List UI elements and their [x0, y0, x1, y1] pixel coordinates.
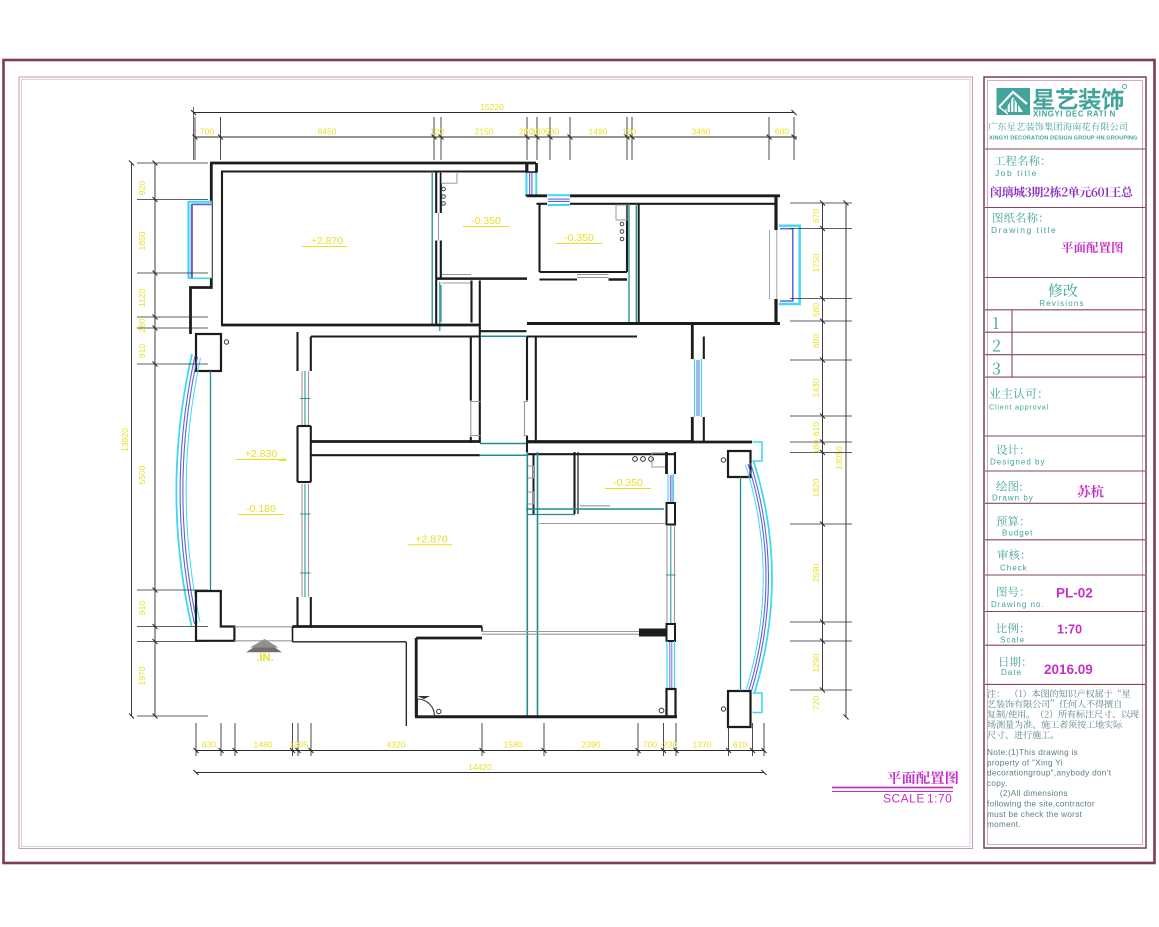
svg-text:Note:(1)This drawing is: Note:(1)This drawing is — [987, 748, 1078, 757]
svg-text:700: 700 — [200, 127, 214, 137]
svg-text:1970: 1970 — [137, 666, 147, 685]
svg-text:600: 600 — [811, 334, 821, 348]
svg-text:15220: 15220 — [480, 102, 504, 112]
svg-text:120: 120 — [430, 127, 444, 137]
svg-text:Job title: Job title — [995, 168, 1038, 178]
svg-text:13050: 13050 — [834, 446, 844, 470]
svg-text:moment.: moment. — [987, 820, 1021, 829]
svg-text:1120: 1120 — [137, 289, 147, 308]
svg-text:13920: 13920 — [120, 428, 130, 452]
svg-text:Check: Check — [1000, 564, 1028, 573]
svg-text:Drawing title: Drawing title — [991, 225, 1057, 235]
svg-text:1480: 1480 — [254, 740, 273, 750]
svg-text:920: 920 — [137, 181, 147, 195]
svg-text:Revisions: Revisions — [1039, 299, 1084, 308]
svg-text:.IN.: .IN. — [256, 652, 273, 664]
svg-text:property of "Xing Yi: property of "Xing Yi — [987, 758, 1063, 767]
svg-text:300: 300 — [531, 127, 545, 137]
svg-text:Date: Date — [1001, 668, 1022, 677]
svg-text:610: 610 — [811, 422, 821, 436]
svg-text:1430: 1430 — [811, 378, 821, 397]
svg-text:(2)All dimensions: (2)All dimensions — [987, 789, 1068, 798]
svg-text:Client approval: Client approval — [989, 403, 1049, 412]
svg-text:1490: 1490 — [589, 127, 608, 137]
svg-text:+2.870: +2.870 — [311, 235, 344, 247]
svg-text:1290: 1290 — [811, 653, 821, 672]
svg-text:5500: 5500 — [137, 465, 147, 484]
svg-text:must be check the worst: must be check the worst — [987, 810, 1083, 819]
svg-text:+2.870: +2.870 — [415, 534, 448, 546]
svg-text:670: 670 — [811, 209, 821, 223]
svg-text:Budget: Budget — [1002, 529, 1033, 538]
svg-text:600: 600 — [775, 127, 789, 137]
svg-text:3460: 3460 — [692, 127, 711, 137]
svg-text:Drawn by: Drawn by — [992, 494, 1034, 503]
svg-text:230: 230 — [663, 740, 677, 750]
svg-text:-0.180: -0.180 — [246, 503, 276, 515]
svg-text:910: 910 — [137, 601, 147, 615]
svg-text:SCALE: SCALE — [883, 792, 925, 806]
svg-text:-0.350: -0.350 — [471, 215, 501, 227]
svg-text:120: 120 — [622, 127, 636, 137]
svg-text:Drawing no.: Drawing no. — [991, 600, 1045, 609]
svg-text:1850: 1850 — [137, 231, 147, 250]
svg-text:280: 280 — [137, 318, 147, 332]
svg-text:Scale: Scale — [1000, 636, 1025, 645]
svg-text:2016.09: 2016.09 — [1044, 662, 1093, 677]
svg-text:530: 530 — [545, 127, 559, 137]
svg-text:2590: 2590 — [811, 563, 821, 582]
svg-text:PL-02: PL-02 — [1056, 586, 1093, 601]
svg-text:copy.: copy. — [987, 779, 1007, 788]
svg-text:580: 580 — [811, 303, 821, 317]
svg-text:2150: 2150 — [475, 127, 494, 137]
svg-text:+2.830: +2.830 — [245, 448, 278, 460]
svg-text:decorationgroup",anybody don’t: decorationgroup",anybody don’t — [987, 769, 1112, 778]
svg-text:XINGYI DEC RATI N: XINGYI DEC RATI N — [1033, 110, 1116, 119]
svg-text:2390: 2390 — [582, 740, 601, 750]
svg-text:14420: 14420 — [468, 762, 492, 772]
svg-text:180: 180 — [811, 440, 821, 454]
svg-text:610: 610 — [733, 740, 747, 750]
svg-text:1:70: 1:70 — [927, 792, 952, 806]
svg-text:1370: 1370 — [693, 740, 712, 750]
svg-text:4320: 4320 — [387, 740, 406, 750]
svg-text:6450: 6450 — [318, 127, 337, 137]
svg-text:XINGYI DECORATION DESIGN GROUP: XINGYI DECORATION DESIGN GROUP HN.GROUPI… — [989, 136, 1138, 142]
svg-text:720: 720 — [811, 696, 821, 710]
svg-text:700: 700 — [643, 740, 657, 750]
svg-text:Designed by: Designed by — [990, 458, 1045, 467]
svg-text:630: 630 — [202, 740, 216, 750]
svg-text:910: 910 — [137, 344, 147, 358]
svg-text:-0.350: -0.350 — [564, 232, 594, 244]
svg-text:1820: 1820 — [811, 478, 821, 497]
svg-text:1305: 1305 — [290, 740, 309, 750]
svg-text:-0.350: -0.350 — [613, 477, 643, 489]
svg-text:1580: 1580 — [504, 740, 523, 750]
svg-text:1750: 1750 — [811, 253, 821, 272]
svg-text:following the site,contractor: following the site,contractor — [987, 800, 1095, 809]
svg-text:1:70: 1:70 — [1057, 623, 1082, 637]
